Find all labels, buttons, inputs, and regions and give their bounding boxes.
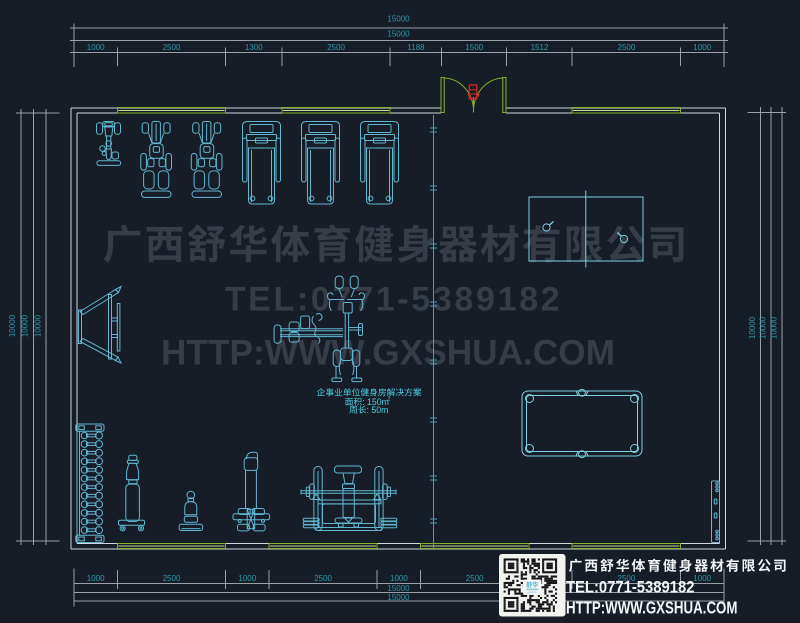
svg-text:10000: 10000 <box>33 314 42 337</box>
svg-text:1000: 1000 <box>87 43 105 52</box>
svg-text:HTTP:WWW.GXSHUA.COM: HTTP:WWW.GXSHUA.COM <box>566 597 738 617</box>
svg-text:HTTP:WWW.GXSHUA.COM: HTTP:WWW.GXSHUA.COM <box>161 334 615 373</box>
svg-text:15000: 15000 <box>387 593 410 602</box>
svg-text:15000: 15000 <box>387 30 410 39</box>
svg-text:1188: 1188 <box>407 43 425 52</box>
svg-text:舒华: 舒华 <box>526 581 538 589</box>
svg-text:10000: 10000 <box>748 316 757 339</box>
svg-text:2500: 2500 <box>163 43 181 52</box>
svg-text:2500: 2500 <box>618 43 636 52</box>
svg-text:1000: 1000 <box>87 574 105 583</box>
svg-text:10000: 10000 <box>769 316 778 339</box>
svg-text:1000: 1000 <box>693 43 711 52</box>
svg-text:15000: 15000 <box>387 15 410 24</box>
svg-text:TEL:0771-5389182: TEL:0771-5389182 <box>225 281 560 319</box>
svg-text:: 50m: : 50m <box>367 405 389 415</box>
svg-text:2500: 2500 <box>314 574 332 583</box>
svg-text:15000: 15000 <box>387 584 410 593</box>
svg-text:10000: 10000 <box>8 314 17 337</box>
svg-text:1512: 1512 <box>531 43 549 52</box>
svg-text:10000: 10000 <box>759 316 768 339</box>
svg-text:2500: 2500 <box>466 574 484 583</box>
svg-text:1300: 1300 <box>245 43 263 52</box>
svg-text:1000: 1000 <box>238 574 256 583</box>
svg-text:1000: 1000 <box>693 574 711 583</box>
svg-text:10000: 10000 <box>21 314 30 337</box>
svg-text:2500: 2500 <box>163 574 181 583</box>
svg-text:1000: 1000 <box>390 574 408 583</box>
svg-text:2500: 2500 <box>327 43 345 52</box>
svg-text:TEL:0771-5389182: TEL:0771-5389182 <box>566 578 695 597</box>
svg-text:1500: 1500 <box>465 43 483 52</box>
svg-text:2: 2 <box>388 397 391 403</box>
